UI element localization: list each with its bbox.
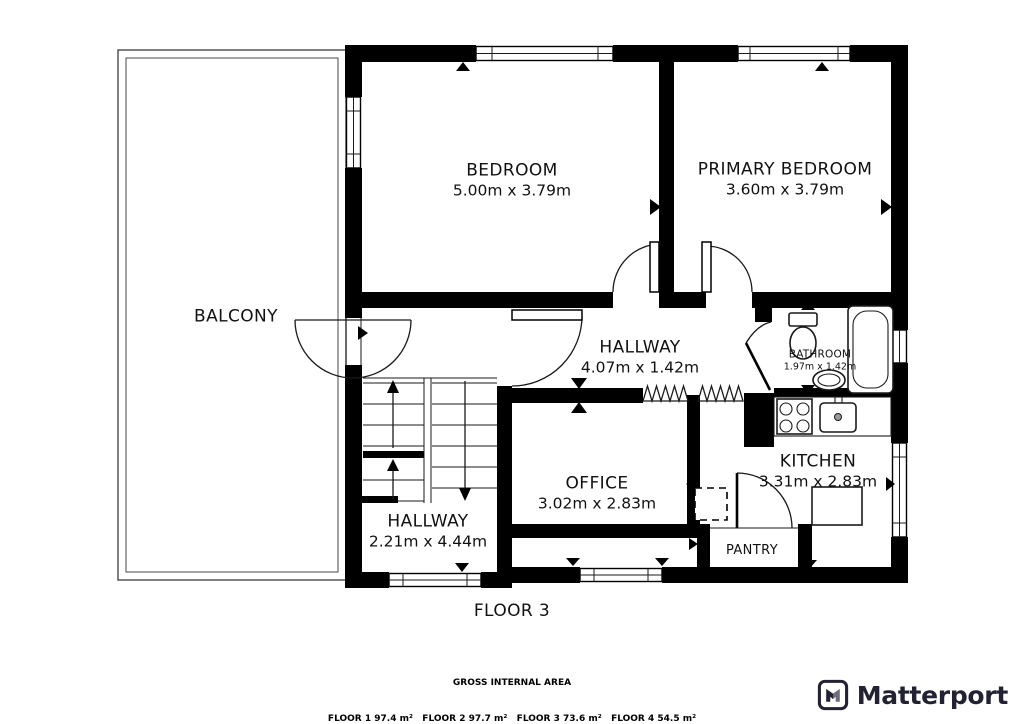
window xyxy=(580,569,662,582)
room-label-hallway-lower: HALLWAY 2.21m x 4.44m xyxy=(369,512,487,553)
stair-hallway-door xyxy=(512,310,582,386)
room-dims: 2.21m x 4.44m xyxy=(369,533,487,552)
room-label-balcony: BALCONY xyxy=(194,306,278,327)
wall-segment xyxy=(345,45,362,97)
wall-segment xyxy=(659,292,706,308)
brand-name: Matterport xyxy=(857,681,1008,710)
room-dims: 3.60m x 3.79m xyxy=(698,181,873,200)
window xyxy=(893,330,907,363)
wall-segment xyxy=(512,567,580,583)
wall-segment xyxy=(345,292,613,308)
room-name: BALCONY xyxy=(194,306,278,327)
wall-segment xyxy=(497,388,643,403)
opening-marker xyxy=(881,199,892,215)
kitchen-island xyxy=(812,487,862,525)
opening-marker xyxy=(358,326,368,340)
window xyxy=(389,574,481,587)
brand-logo: Matterport xyxy=(816,678,1008,712)
opening-marker xyxy=(456,62,470,71)
wall-segment xyxy=(613,45,738,62)
stove xyxy=(777,399,812,434)
room-label-kitchen: KITCHEN 3.31m x 2.83m xyxy=(759,452,877,493)
area-summary-floors: FLOOR 1 97.4 m² FLOOR 2 97.7 m² FLOOR 3 … xyxy=(288,713,736,724)
primary-bedroom-door xyxy=(702,242,752,292)
room-name: HALLWAY xyxy=(581,338,699,359)
wall-segment xyxy=(481,572,512,588)
room-name: KITCHEN xyxy=(759,452,877,473)
wall-segment xyxy=(497,524,697,538)
opening-marker xyxy=(689,538,698,550)
wall-segment xyxy=(659,62,674,292)
wall-segment xyxy=(345,572,389,588)
floor-label: FLOOR 3 xyxy=(474,601,550,621)
dashed-void xyxy=(695,488,727,520)
room-dims: 5.00m x 3.79m xyxy=(453,182,571,201)
wall-segment xyxy=(662,567,908,583)
room-label-hallway-upper: HALLWAY 4.07m x 1.42m xyxy=(581,338,699,379)
area-summary-title: GROSS INTERNAL AREA xyxy=(288,677,736,689)
stairs-up-arrow xyxy=(387,380,399,499)
room-label-bedroom: BEDROOM 5.00m x 3.79m xyxy=(453,161,571,202)
stairs xyxy=(362,378,497,503)
window xyxy=(347,97,361,168)
room-name: BEDROOM xyxy=(453,161,571,182)
room-dims: 3.02m x 2.83m xyxy=(538,495,656,514)
bathroom-door xyxy=(746,322,771,390)
wall-segment xyxy=(755,308,772,322)
wall-segment xyxy=(345,45,476,62)
opening-marker xyxy=(455,563,469,572)
room-label-primary-bedroom: PRIMARY BEDROOM 3.60m x 3.79m xyxy=(698,160,873,201)
room-label-pantry: PANTRY xyxy=(726,543,778,559)
kitchen-sink xyxy=(820,397,856,432)
opening-marker xyxy=(571,402,587,413)
wall-segment xyxy=(744,393,774,447)
opening-marker xyxy=(566,558,580,566)
floor-plan-page: BEDROOM 5.00m x 3.79m PRIMARY BEDROOM 3.… xyxy=(0,0,1024,724)
room-name: PRIMARY BEDROOM xyxy=(698,160,873,181)
area-summary: GROSS INTERNAL AREA FLOOR 1 97.4 m² FLOO… xyxy=(288,653,736,724)
room-dims: 4.07m x 1.42m xyxy=(581,359,699,378)
matterport-logo-icon xyxy=(816,678,850,712)
wall-segment xyxy=(497,386,512,582)
room-dims: 3.31m x 2.83m xyxy=(759,473,877,492)
stairs-down-arrow xyxy=(459,381,471,501)
wall-segment xyxy=(891,45,908,330)
bedroom-door xyxy=(613,242,661,292)
room-dims: 1.97m x 1.42m xyxy=(784,362,856,374)
opening-marker xyxy=(571,378,587,389)
window xyxy=(893,443,907,537)
wall-segment xyxy=(345,365,362,588)
room-name: BATHROOM xyxy=(784,349,856,362)
opening-marker xyxy=(655,558,669,566)
room-label-office: OFFICE 3.02m x 2.83m xyxy=(538,474,656,515)
room-name: HALLWAY xyxy=(369,512,487,533)
window xyxy=(476,47,613,61)
room-name: OFFICE xyxy=(538,474,656,495)
room-name: PANTRY xyxy=(726,543,778,559)
opening-marker xyxy=(815,62,829,71)
window xyxy=(738,47,850,61)
room-label-bathroom: BATHROOM 1.97m x 1.42m xyxy=(784,349,856,374)
